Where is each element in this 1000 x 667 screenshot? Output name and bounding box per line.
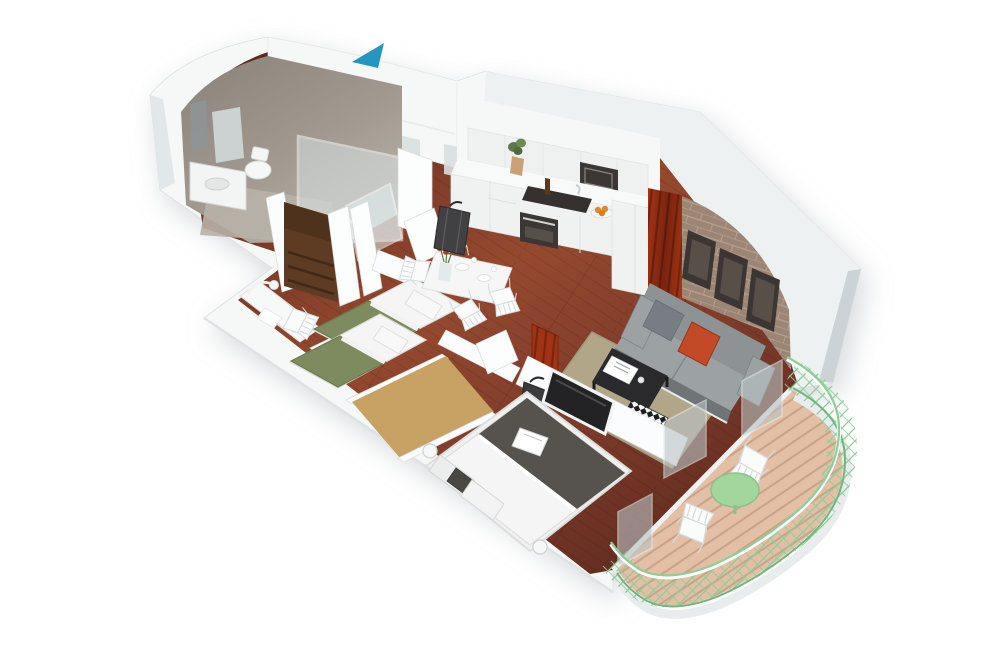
- plate-2: [477, 275, 491, 282]
- cup-1: [471, 257, 476, 262]
- plate-1: [455, 264, 469, 271]
- bathroom-mirror: [212, 107, 244, 163]
- floor-plan-canvas: [0, 0, 1000, 667]
- sink-basin: [205, 178, 229, 190]
- red-curtain-folds: [648, 188, 686, 302]
- floor-plan-3d-render: [0, 0, 1000, 667]
- cup-2: [491, 266, 496, 271]
- wine-bottle: [545, 178, 550, 195]
- desk-lamp-head: [270, 281, 279, 290]
- nightstand-lamp-right: [533, 540, 547, 554]
- bathroom-window: [190, 100, 208, 152]
- mug: [638, 377, 644, 383]
- nightstand-lamp-left: [423, 444, 437, 458]
